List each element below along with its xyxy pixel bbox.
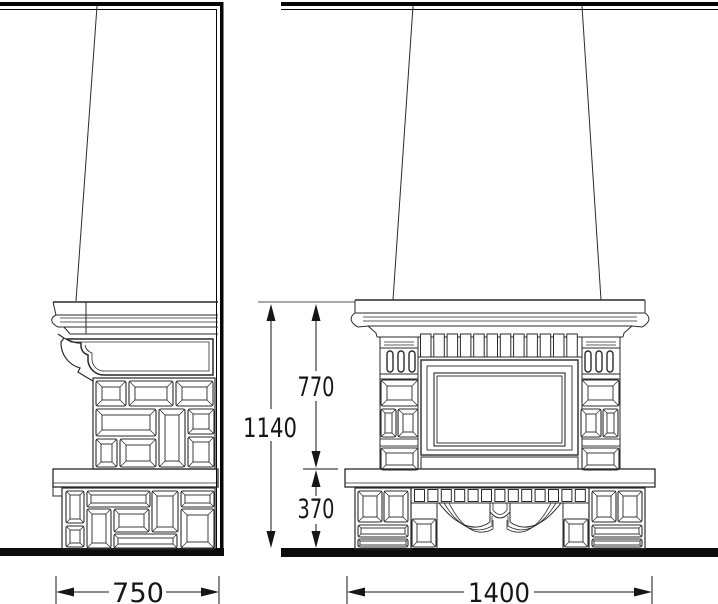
dim-front-width-label: 1400 [468, 578, 530, 604]
side-base-panels [66, 491, 214, 548]
front-apron [411, 488, 589, 532]
front-mantel-shelf [351, 300, 649, 337]
firebox-opening [421, 360, 578, 469]
dim-upper-height-label: 770 [298, 372, 335, 403]
arrowhead [56, 588, 74, 597]
dim-side-depth: 750 [56, 576, 219, 604]
arrowhead [312, 451, 321, 468]
arrowhead [267, 304, 276, 321]
arrowhead [201, 588, 219, 597]
front-dentil-frieze [418, 334, 582, 357]
dim-overall-height-label: 1140 [243, 413, 297, 444]
arrowhead [312, 470, 321, 487]
room-structure [0, 2, 718, 557]
arrowhead [634, 588, 652, 597]
arrowhead [312, 531, 321, 548]
technical-drawing-page: 750 1400 1140 770 [0, 0, 718, 604]
front-elevation [345, 6, 655, 549]
arrowhead [312, 304, 321, 321]
side-mantel-shelf [52, 302, 218, 334]
firebox-plinth [421, 457, 578, 469]
front-flue-hood [393, 6, 601, 300]
dim-front-width: 1400 [347, 576, 652, 604]
dim-overall-height: 1140 [243, 304, 297, 548]
dim-upper-height: 770 [298, 304, 335, 468]
dim-base-height: 370 [298, 470, 335, 548]
front-hearth-shelf [345, 469, 655, 487]
floor-right [281, 548, 718, 557]
arrowhead [267, 531, 276, 548]
dim-side-depth-label: 750 [112, 578, 164, 604]
dim-base-height-label: 370 [298, 494, 335, 525]
side-elevation [52, 6, 218, 549]
side-body-panels [96, 381, 214, 467]
arrowhead [347, 588, 365, 597]
fireplace-elevation-drawing: 750 1400 1140 770 [0, 0, 718, 604]
side-frieze-panel [58, 334, 213, 381]
side-flue-line [76, 6, 97, 301]
